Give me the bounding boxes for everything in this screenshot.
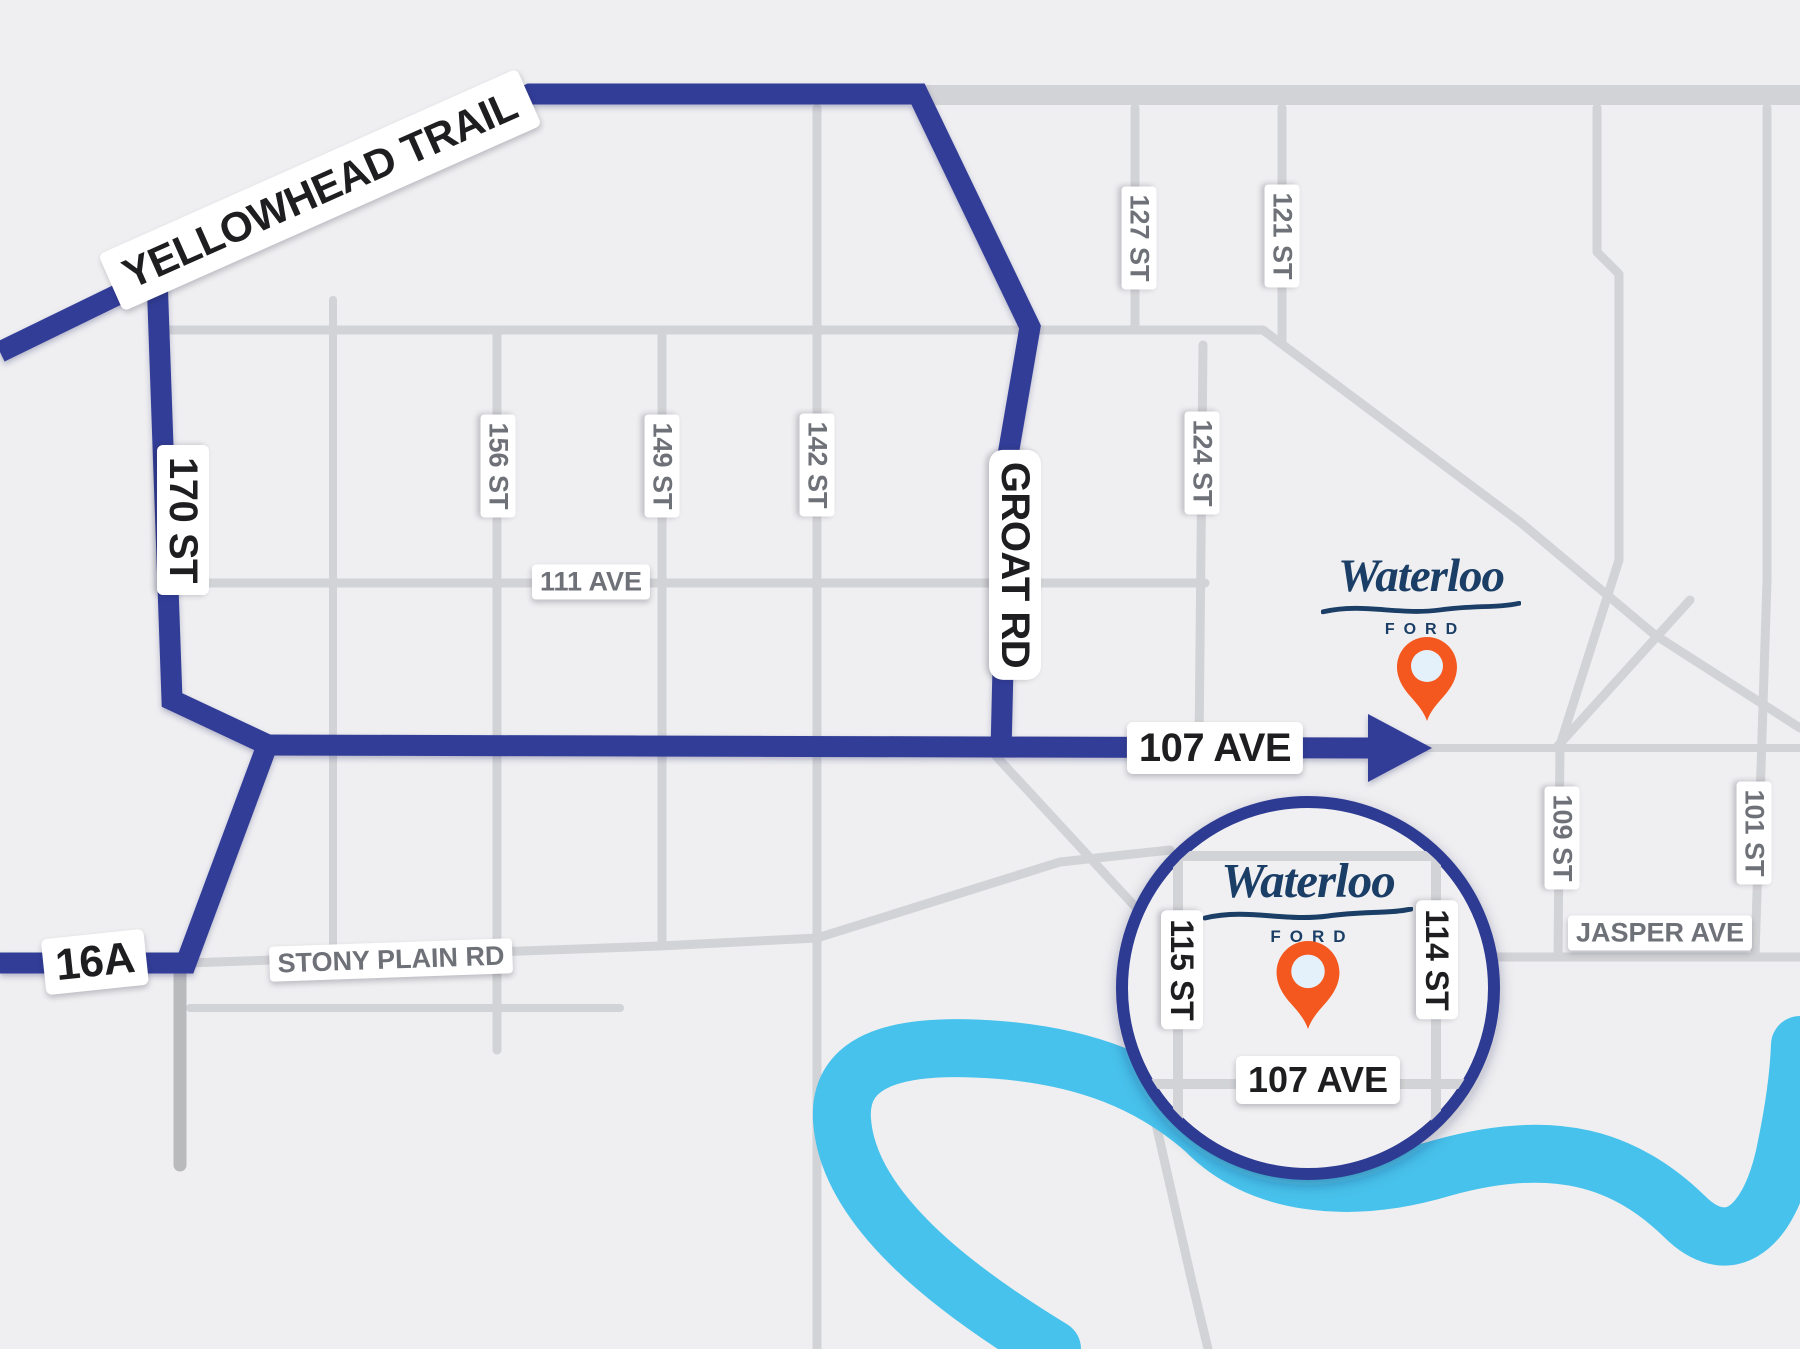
- inset-label-115-st: 115 ST: [1161, 910, 1203, 1029]
- dealership-directions-map: YELLOWHEAD TRAIL 170 ST GROAT RD 107 AVE…: [0, 0, 1800, 1349]
- street-label-142-st: 142 ST: [800, 413, 835, 516]
- road-diagonal-sw: [996, 756, 1140, 912]
- inset-label-107-ave: 107 AVE: [1236, 1056, 1400, 1104]
- road-124-st: [1199, 345, 1203, 748]
- road-diagonal-ne: [1556, 600, 1690, 748]
- road-118-ave-diagonal: [165, 330, 1800, 728]
- street-label-101-st: 101 ST: [1737, 781, 1772, 884]
- street-label-156-st: 156 ST: [481, 414, 516, 517]
- inset-logo-swoosh-icon: [1203, 907, 1413, 923]
- street-label-127-st: 127 ST: [1122, 186, 1157, 289]
- road-label-16a: 16A: [41, 929, 150, 995]
- inset-location-pin-icon: [1276, 941, 1340, 1029]
- inset-label-114-st: 114 ST: [1416, 900, 1458, 1019]
- location-pin-icon: [1397, 637, 1457, 721]
- street-label-111-ave: 111 AVE: [532, 565, 650, 600]
- street-label-jasper-ave: JASPER AVE: [1568, 916, 1752, 951]
- road-label-170-st: 170 ST: [157, 445, 209, 595]
- street-label-149-st: 149 ST: [645, 414, 680, 517]
- waterloo-ford-logo: Waterloo FORD: [1321, 549, 1521, 639]
- road-label-groat-rd: GROAT RD: [989, 450, 1041, 680]
- route-arrowhead-icon: [1368, 714, 1432, 782]
- street-label-121-st: 121 ST: [1265, 184, 1300, 287]
- logo-brand-text: Waterloo: [1338, 549, 1504, 603]
- road-label-107-ave: 107 AVE: [1127, 722, 1303, 774]
- street-label-109-st: 109 ST: [1545, 786, 1580, 889]
- street-label-124-st: 124 ST: [1185, 411, 1220, 514]
- inset-logo-brand-text: Waterloo: [1221, 852, 1394, 909]
- inset-waterloo-ford-logo: Waterloo FORD: [1203, 852, 1413, 947]
- logo-swoosh-icon: [1321, 601, 1521, 617]
